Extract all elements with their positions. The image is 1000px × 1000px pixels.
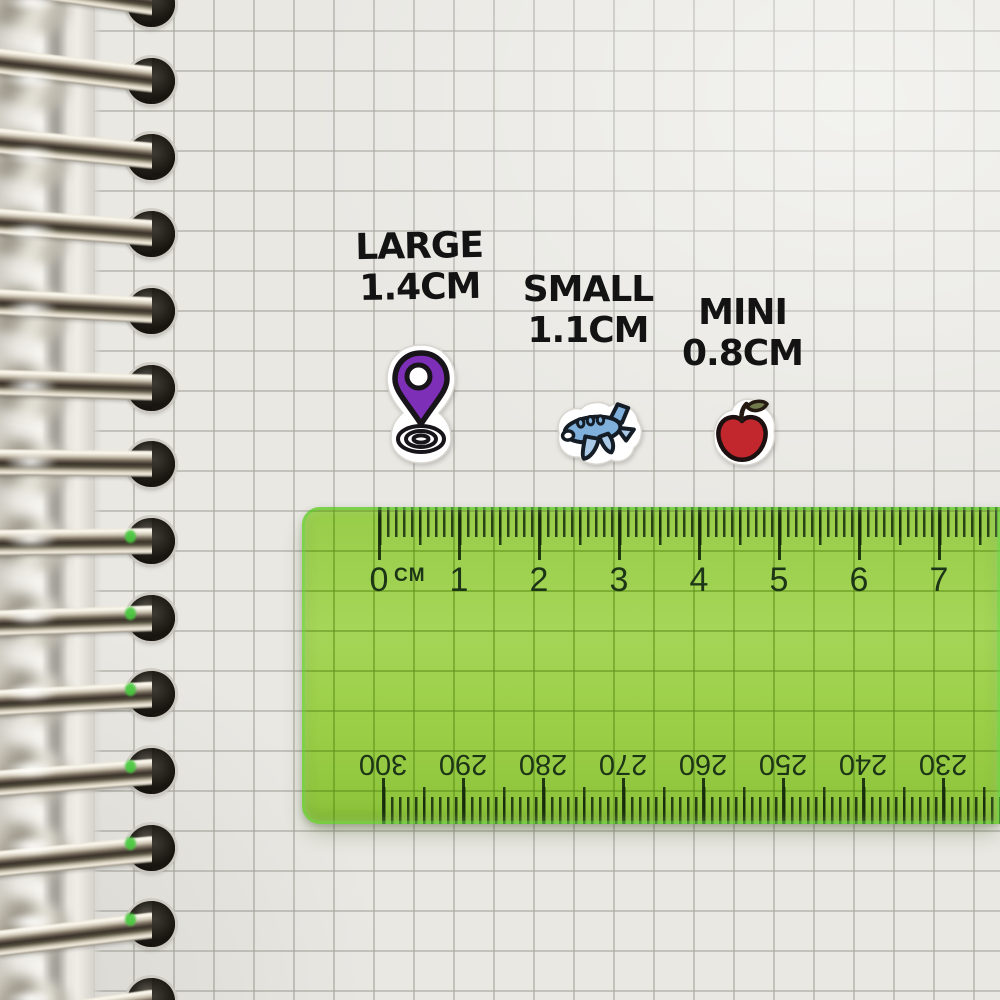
ruler-top-cm-ticks [378,507,1000,560]
label-mini: MINI 0.8CM [680,292,805,374]
notebook-photo: LARGE 1.4CM SMALL 1.1CM MINI 0.8CM [0,0,1000,1000]
metal-highlight [4,606,58,626]
apple-sticker [706,396,778,470]
plane-nose [562,430,574,440]
label-small-size: 1.1CM [522,310,654,351]
metal-highlight [4,69,58,89]
green-reflection [125,837,136,850]
apple-leaf [747,401,767,410]
ruler-mm-number: 250 [759,747,807,780]
label-large: LARGE 1.4CM [351,225,487,309]
airplane-sticker [551,399,643,467]
metal-highlight [4,759,58,779]
ruler-mm-number: 280 [519,747,567,780]
label-large-size: 1.4CM [352,266,488,309]
ruler-mm-number: 290 [439,747,487,780]
ruler-cm-number: 2 [530,561,549,600]
ruler-unit-label: CM [394,565,426,587]
label-small-title: SMALL [522,269,654,310]
green-reflection [125,760,136,773]
ruler-bottom-cm-ticks [382,778,1000,824]
ruler-cm-number: 6 [850,561,869,600]
label-small: SMALL 1.1CM [522,269,654,351]
label-large-title: LARGE [351,225,487,268]
green-ruler: 01234567 CM 300290280270260250240230 [302,507,1000,824]
ruler-cm-number: 3 [610,561,629,600]
apple-body [718,417,765,460]
location-pin-sticker [383,343,459,465]
ruler-cm-number: 7 [930,561,949,600]
ruler-mm-number: 300 [359,747,407,780]
metal-highlight [4,299,58,319]
green-reflection [125,607,136,620]
pin-hole [407,365,430,388]
label-mini-size: 0.8CM [680,333,805,374]
green-reflection [125,530,136,543]
ruler-mm-number: 270 [599,747,647,780]
ruler-cm-number: 4 [690,561,709,600]
label-mini-title: MINI [680,292,805,333]
ruler-mm-number: 240 [839,747,887,780]
metal-highlight [4,529,58,549]
metal-highlight [4,836,58,856]
ruler-cm-number: 5 [770,561,789,600]
metal-highlight [4,376,58,396]
ruler-cm-number: 1 [450,561,469,600]
metal-highlight [4,222,58,242]
ruler-cm-number: 0 [370,561,389,600]
ruler-mm-number: 260 [679,747,727,780]
ruler-mm-number: 230 [919,747,967,780]
